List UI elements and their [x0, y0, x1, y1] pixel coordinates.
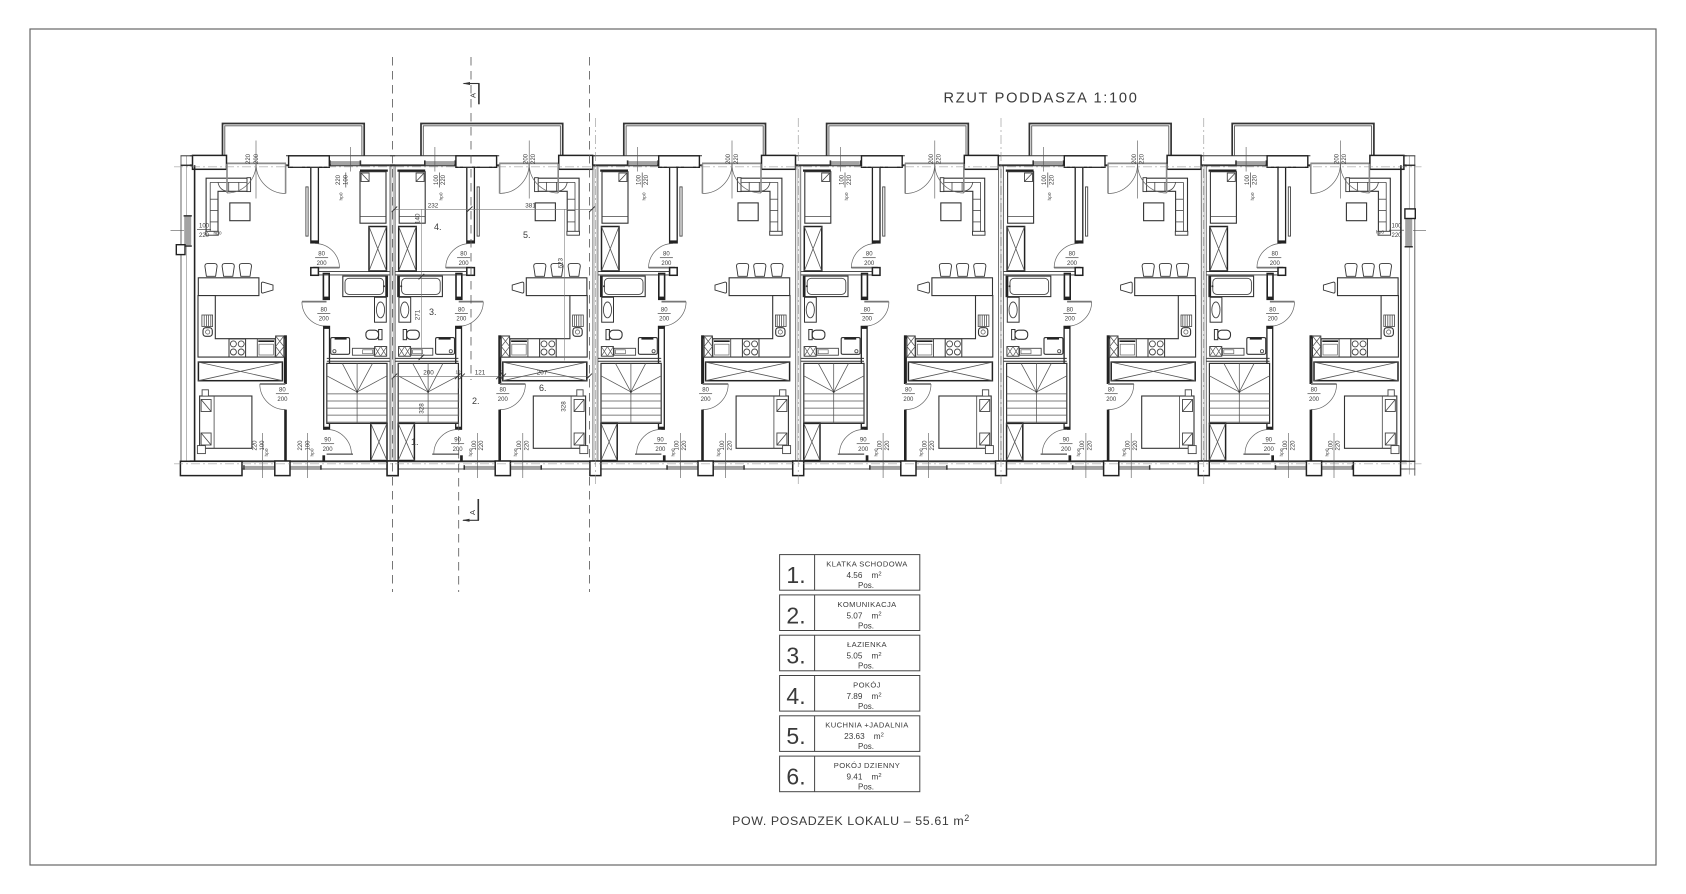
svg-text:Pos.: Pos. — [858, 662, 874, 671]
svg-text:KUCHNIA +JADALNIA: KUCHNIA +JADALNIA — [825, 721, 909, 730]
svg-text:1.: 1. — [786, 562, 805, 588]
svg-text:ŁAZIENKA: ŁAZIENKA — [847, 640, 887, 649]
svg-text:A: A — [469, 93, 478, 98]
svg-text:23.63 m2: 23.63 m2 — [844, 732, 884, 741]
svg-text:Pos.: Pos. — [858, 581, 874, 590]
svg-text:200: 200 — [323, 447, 334, 453]
svg-text:hp0: hp0 — [1376, 229, 1384, 235]
svg-text:80: 80 — [279, 388, 286, 394]
svg-text:3.: 3. — [786, 643, 805, 669]
svg-text:hp0: hp0 — [309, 448, 315, 456]
svg-text:RZUT PODDASZA 1:100: RZUT PODDASZA 1:100 — [943, 91, 1138, 107]
svg-text:5.05 m2: 5.05 m2 — [846, 652, 881, 661]
svg-text:381: 381 — [525, 203, 536, 210]
svg-text:328: 328 — [560, 401, 567, 412]
svg-text:100: 100 — [199, 224, 210, 230]
svg-text:12: 12 — [455, 370, 461, 375]
svg-text:2.: 2. — [786, 602, 805, 628]
svg-text:4.56 m2: 4.56 m2 — [846, 571, 881, 580]
svg-text:POKÓJ DZIENNY: POKÓJ DZIENNY — [834, 761, 900, 770]
svg-text:6.: 6. — [539, 383, 547, 393]
svg-text:100: 100 — [343, 174, 349, 185]
svg-text:200: 200 — [317, 261, 328, 267]
svg-text:Pos.: Pos. — [858, 783, 874, 792]
svg-text:220: 220 — [253, 440, 259, 451]
svg-text:80: 80 — [320, 308, 327, 314]
svg-text:Pos.: Pos. — [858, 742, 874, 751]
svg-text:100: 100 — [1391, 224, 1402, 230]
svg-text:200: 200 — [254, 153, 260, 164]
svg-text:140: 140 — [414, 213, 421, 224]
svg-text:7.89 m2: 7.89 m2 — [846, 692, 881, 701]
svg-text:POW. POSADZEK LOKALU – 55.61 m: POW. POSADZEK LOKALU – 55.61 m2 — [732, 813, 970, 828]
svg-text:220: 220 — [246, 153, 252, 164]
svg-text:271: 271 — [414, 309, 421, 320]
svg-text:A: A — [468, 510, 477, 515]
svg-text:220: 220 — [1391, 233, 1402, 239]
svg-text:623: 623 — [557, 258, 564, 269]
svg-text:1.: 1. — [411, 437, 419, 447]
svg-text:Pos.: Pos. — [858, 702, 874, 711]
svg-text:hp0: hp0 — [213, 231, 221, 237]
svg-text:90: 90 — [324, 438, 331, 444]
svg-text:220: 220 — [336, 174, 342, 185]
svg-text:4.: 4. — [434, 222, 442, 232]
svg-text:Pos.: Pos. — [858, 621, 874, 630]
svg-text:hp0: hp0 — [264, 448, 270, 456]
svg-text:KLATKA SCHODOWA: KLATKA SCHODOWA — [826, 560, 908, 569]
svg-text:hp0: hp0 — [339, 192, 345, 200]
svg-text:KOMUNIKACJA: KOMUNIKACJA — [837, 600, 897, 609]
svg-text:3.: 3. — [429, 307, 437, 317]
svg-text:207: 207 — [537, 369, 548, 376]
svg-text:121: 121 — [475, 369, 486, 376]
svg-text:328: 328 — [419, 403, 426, 414]
svg-text:200: 200 — [423, 369, 434, 376]
svg-text:200: 200 — [319, 317, 330, 323]
svg-text:5.: 5. — [523, 230, 531, 240]
svg-text:12: 12 — [498, 370, 504, 375]
svg-text:6.: 6. — [786, 764, 805, 790]
svg-text:2.: 2. — [472, 396, 480, 406]
svg-text:200: 200 — [277, 397, 288, 403]
svg-text:220: 220 — [298, 440, 304, 451]
svg-text:POKÓJ: POKÓJ — [853, 680, 881, 689]
svg-text:80: 80 — [318, 252, 325, 258]
svg-text:9.41 m2: 9.41 m2 — [846, 773, 881, 782]
svg-text:5.: 5. — [786, 723, 805, 749]
svg-text:220: 220 — [199, 233, 210, 239]
svg-text:5.07 m2: 5.07 m2 — [846, 611, 881, 620]
svg-text:232: 232 — [428, 203, 439, 210]
svg-text:4.: 4. — [786, 683, 805, 709]
